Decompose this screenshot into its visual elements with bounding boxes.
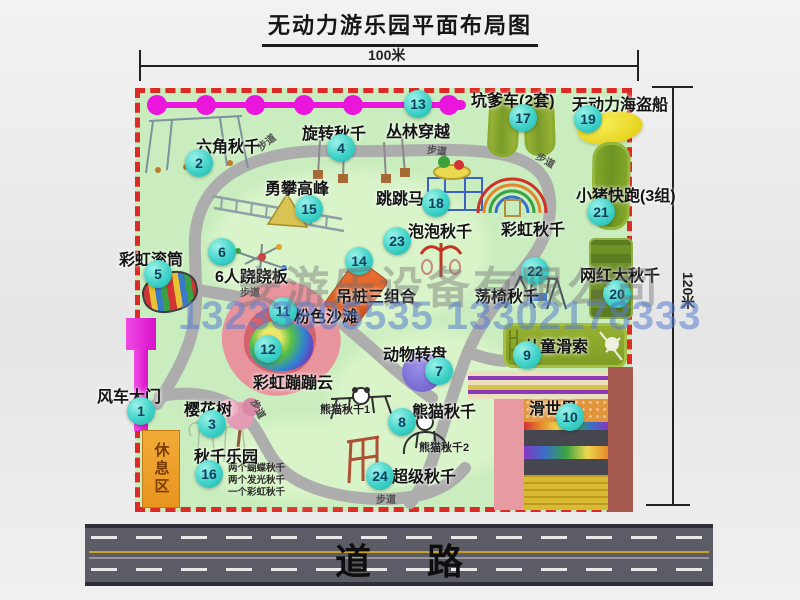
dimension-label-right: 120米	[678, 272, 698, 309]
swing-park-note: 两个蝴蝶秋千	[228, 463, 285, 475]
rest-area-label: 休息区	[151, 442, 172, 496]
slide-lane-rainbow	[524, 446, 608, 459]
kengdieche-track-icon	[486, 96, 520, 158]
slide-world-runway-icon	[468, 371, 628, 399]
kengdieche-track-icon	[523, 95, 556, 156]
park-plan-page: 无动力游乐园平面布局图 100米 120米	[0, 0, 800, 600]
kids-zipline-pad-icon	[503, 323, 627, 368]
rest-area: 休息区	[142, 430, 180, 508]
windmill-gate-icon	[126, 318, 156, 350]
swing-park-note: 两个发光秋千	[228, 475, 285, 487]
dimension-line-right	[672, 86, 674, 506]
panda-swing-2-label: 熊猫秋千2	[419, 439, 469, 455]
dimension-tick-right-top	[652, 86, 693, 88]
road-label: 道 路	[85, 533, 713, 585]
rainbow-swing-label: 彩虹秋千	[501, 216, 565, 240]
road: 道 路	[85, 524, 713, 586]
dimension-tick-top-left	[139, 50, 141, 81]
panda-swing-1-label: 熊猫秋千1	[320, 401, 370, 417]
dimension-line-top	[140, 65, 639, 67]
dimension-tick-right-bottom	[646, 504, 690, 506]
big-swing-pad-icon	[589, 238, 633, 319]
slide-lane-dark	[524, 430, 608, 446]
windmill-gate-pole	[134, 349, 148, 431]
slide-lane-yellow-wave	[524, 475, 608, 510]
slide-lane-orange	[524, 399, 608, 422]
page-title: 无动力游乐园平面布局图	[262, 8, 538, 47]
slide-lane-rainbow	[524, 422, 608, 430]
slide-lane-dark	[524, 459, 608, 475]
swing-park-notes: 两个蝴蝶秋千两个发光秋千一个彩虹秋千	[228, 463, 285, 499]
bounce-cloud-icon	[249, 321, 313, 371]
pig-run-track-icon	[591, 142, 631, 231]
slide-world-lanes-icon	[524, 399, 608, 510]
animal-turntable-icon	[402, 352, 442, 392]
dimension-label-top: 100米	[368, 45, 405, 65]
slide-world-red-band	[608, 367, 633, 512]
swing-park-note: 一个彩虹秋千	[228, 487, 285, 499]
dimension-tick-top-right	[637, 50, 639, 81]
